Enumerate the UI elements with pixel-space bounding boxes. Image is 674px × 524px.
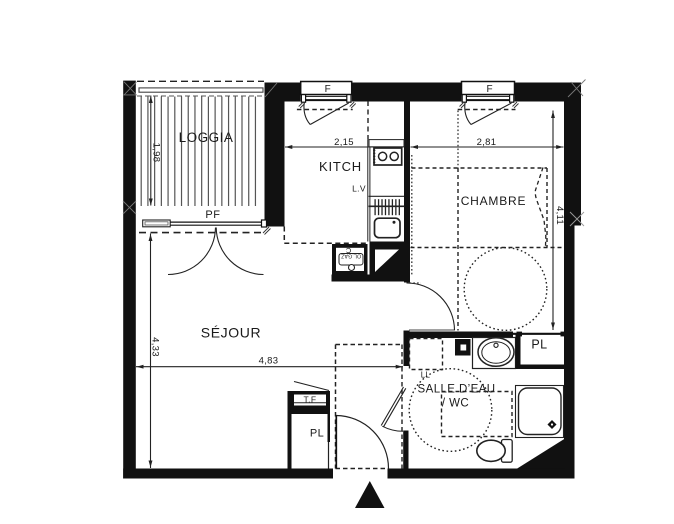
svg-text:CHAMBRE: CHAMBRE [461,194,527,208]
svg-text:PF: PF [205,209,220,221]
svg-text:L.V: L.V [352,184,366,194]
svg-text:PL: PL [531,338,547,352]
svg-text:LOGGIA: LOGGIA [179,130,234,145]
svg-text:SÉJOUR: SÉJOUR [201,325,261,341]
svg-text:F: F [325,84,331,95]
svg-text:LL: LL [421,371,431,380]
svg-text:2,15: 2,15 [334,137,354,148]
svg-text:4,33: 4,33 [150,337,161,357]
svg-text:4,83: 4,83 [259,356,279,367]
svg-text:2,81: 2,81 [477,137,497,148]
svg-text:OL.GAZ: OL.GAZ [341,253,361,259]
svg-text:/ WC: / WC [442,398,469,410]
svg-text:SALLE D’EAU: SALLE D’EAU [418,384,496,396]
svg-text:1,98: 1,98 [150,143,161,163]
svg-text:KITCH: KITCH [319,159,362,174]
svg-text:F: F [486,84,492,95]
svg-text:4,11: 4,11 [554,206,565,225]
svg-text:PL: PL [310,428,324,440]
